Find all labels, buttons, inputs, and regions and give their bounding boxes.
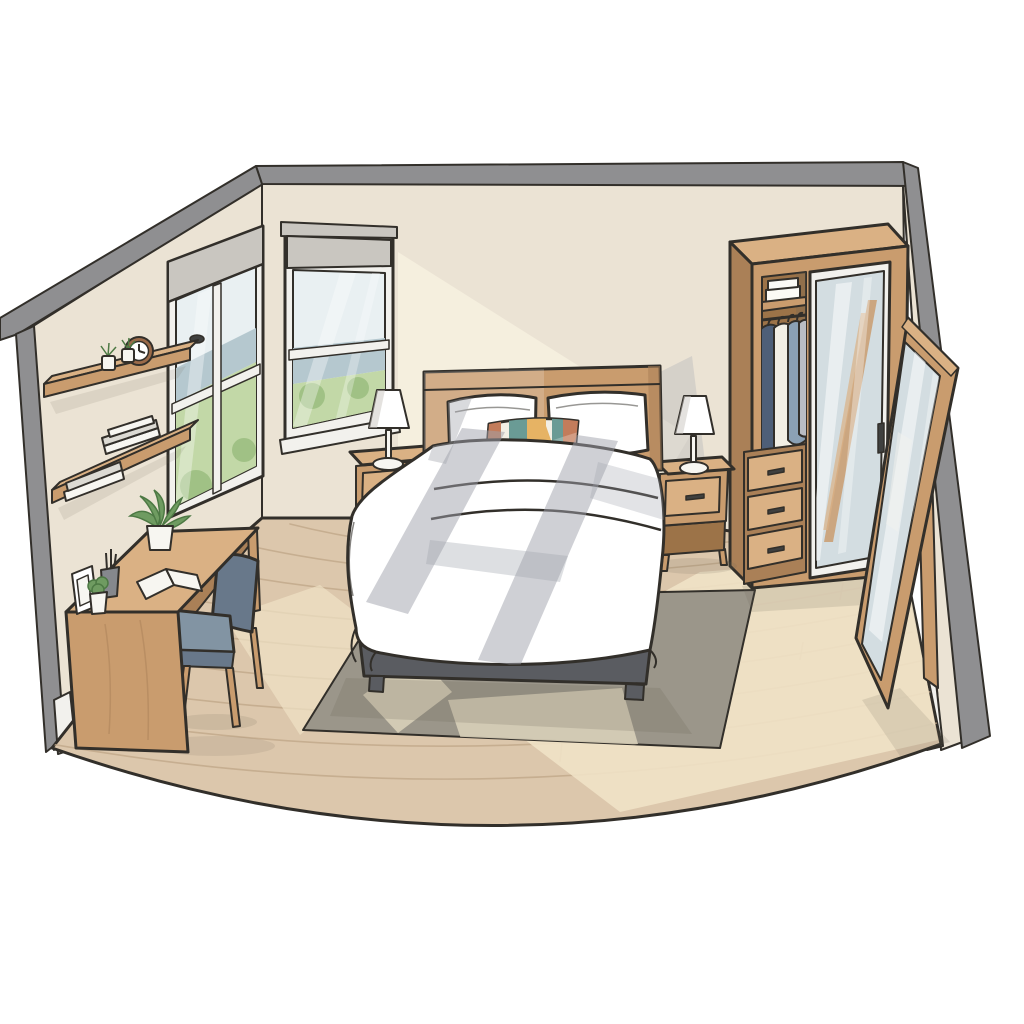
lamp-right-base	[680, 462, 708, 474]
window-right-roller-shade	[287, 236, 391, 268]
small-plant-pot	[90, 592, 107, 614]
wardrobe-drawers[interactable]	[744, 444, 806, 584]
desk-plant-pot	[147, 526, 173, 550]
bed-foot-right	[625, 684, 644, 700]
desk-small-plant	[88, 577, 108, 614]
door-handle[interactable]	[878, 423, 884, 453]
back-wall-top-edge	[256, 162, 916, 186]
hanging-clothes[interactable]	[756, 313, 814, 456]
nsr-leg-right	[719, 549, 727, 565]
window-left	[168, 226, 263, 518]
bedroom-illustration: Minimalist bedroom interior, isometric c…	[0, 0, 1024, 1024]
bed-foot-left	[369, 676, 384, 692]
desk-front-panel	[66, 612, 188, 752]
window-left-mullion	[213, 283, 221, 494]
headboard-shade-right	[648, 366, 662, 470]
bedroom-scene-svg: Minimalist bedroom interior, isometric c…	[0, 0, 1024, 1024]
